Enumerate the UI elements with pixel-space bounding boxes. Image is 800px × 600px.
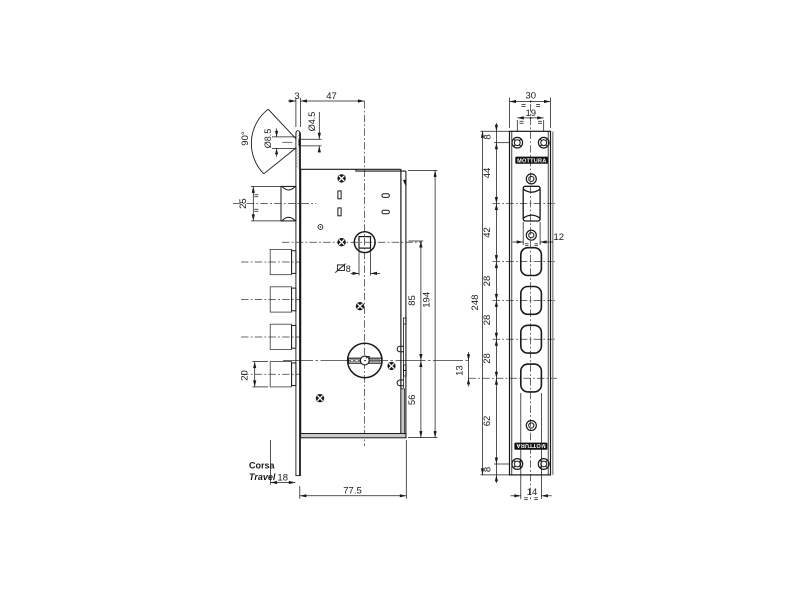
- svg-text:44: 44: [482, 168, 493, 179]
- svg-text:56: 56: [407, 395, 418, 406]
- svg-text:28: 28: [482, 353, 493, 364]
- svg-text:30: 30: [526, 91, 537, 102]
- svg-text:85: 85: [407, 295, 418, 306]
- svg-text:28: 28: [482, 315, 493, 326]
- svg-text:19: 19: [526, 108, 537, 119]
- svg-text:47: 47: [326, 91, 337, 102]
- svg-text:42: 42: [482, 227, 493, 238]
- svg-text:3: 3: [294, 91, 299, 102]
- svg-text:Ø4.5: Ø4.5: [307, 112, 317, 132]
- svg-text:8: 8: [483, 467, 494, 472]
- svg-text:62: 62: [482, 416, 493, 427]
- svg-text:194: 194: [422, 292, 433, 308]
- svg-text:12: 12: [554, 232, 565, 243]
- svg-text:Corsa: Corsa: [249, 460, 276, 470]
- svg-text:28: 28: [482, 276, 493, 287]
- svg-text:13: 13: [454, 365, 465, 376]
- svg-text:77.5: 77.5: [343, 486, 362, 497]
- svg-text:MOTTURA: MOTTURA: [517, 158, 546, 164]
- svg-text:Travel: Travel: [249, 472, 276, 482]
- svg-text:90°: 90°: [240, 131, 251, 146]
- svg-text:25: 25: [238, 198, 249, 209]
- svg-text:8: 8: [483, 134, 494, 139]
- svg-text:20: 20: [239, 370, 250, 381]
- svg-text:18: 18: [277, 473, 288, 484]
- svg-text:Ø8.5: Ø8.5: [263, 129, 273, 149]
- svg-text:8: 8: [346, 264, 351, 274]
- svg-text:14: 14: [527, 487, 538, 498]
- svg-text:248: 248: [470, 295, 481, 311]
